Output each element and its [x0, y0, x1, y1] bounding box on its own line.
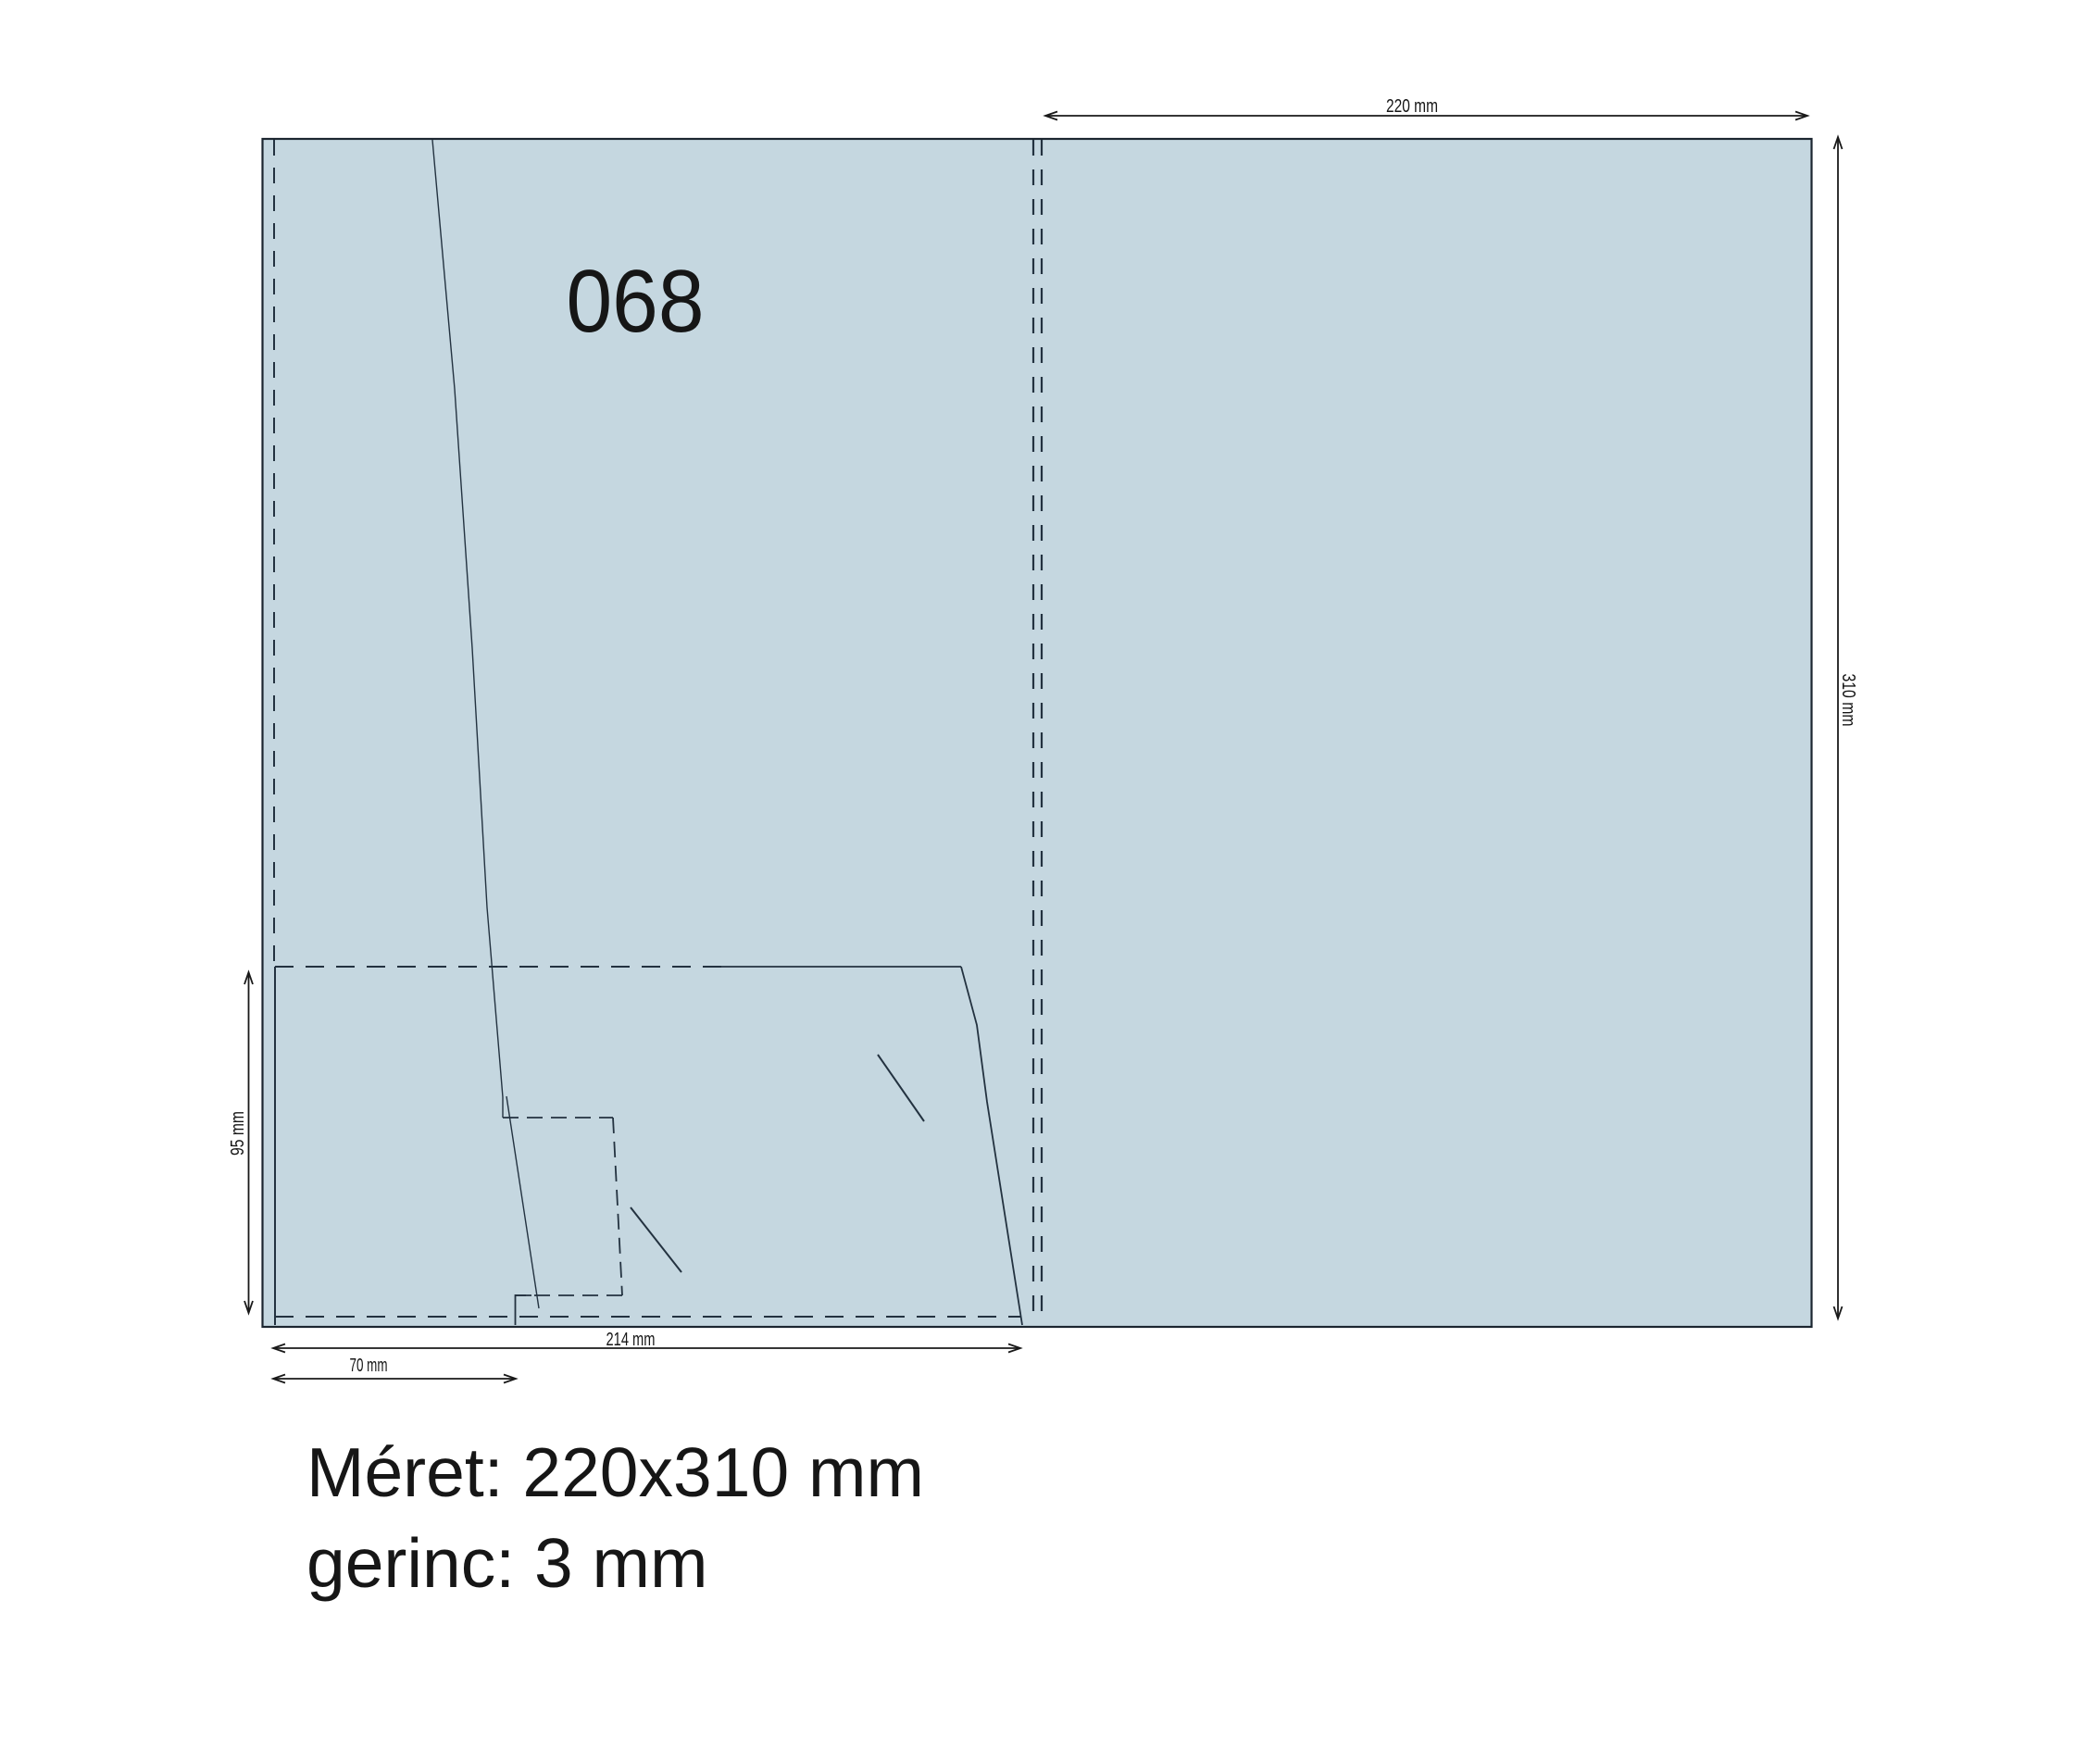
svg-text:214 mm: 214 mm — [606, 1330, 656, 1350]
svg-text:95 mm: 95 mm — [228, 1111, 248, 1156]
svg-text:310 mm: 310 mm — [1838, 674, 1858, 727]
svg-text:Méret: 220x310 mm: Méret: 220x310 mm — [306, 1433, 924, 1511]
svg-text:220 mm: 220 mm — [1386, 96, 1438, 117]
svg-text:gerinc: 3 mm: gerinc: 3 mm — [306, 1524, 707, 1602]
svg-text:70 mm: 70 mm — [350, 1356, 388, 1376]
svg-text:068: 068 — [567, 252, 705, 351]
